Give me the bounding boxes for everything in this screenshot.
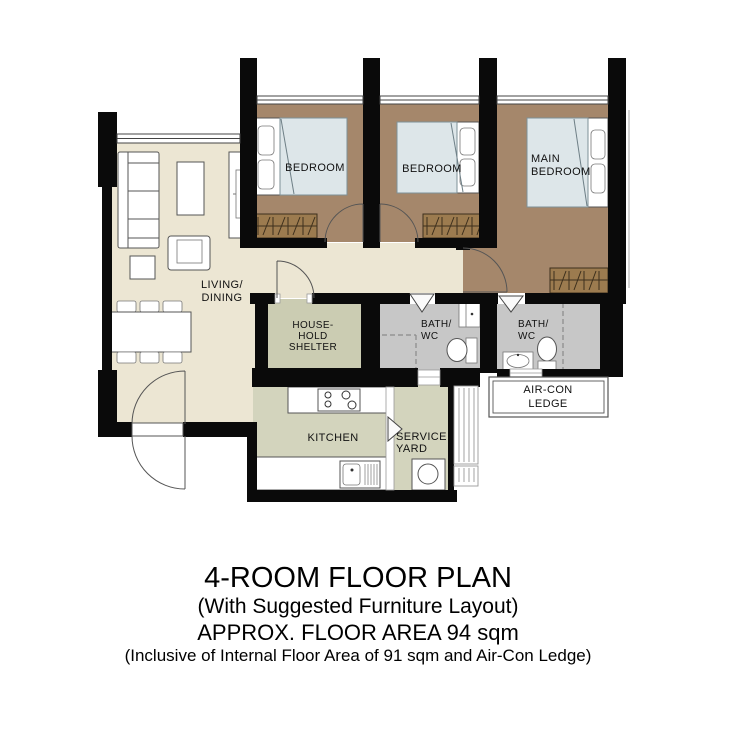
household-shelter-label: SHELTER — [289, 342, 337, 353]
dining-chair-icon — [163, 352, 182, 363]
stove-icon — [318, 389, 360, 411]
bath1-label: WC — [421, 331, 438, 342]
aircon-ledge-label: LEDGE — [528, 398, 567, 410]
living-dining-label: LIVING/ — [201, 279, 243, 291]
washing-machine-icon — [412, 459, 445, 490]
main-bedroom-label: MAIN — [531, 153, 560, 165]
corridor-floor — [250, 243, 463, 298]
bedroom1-label: BEDROOM — [285, 162, 345, 174]
dining-chair-icon — [163, 301, 182, 312]
wardrobe-icon — [550, 268, 608, 293]
pillow-icon — [591, 130, 605, 159]
kitchen-sink-icon — [340, 461, 380, 488]
window-icon — [418, 370, 440, 385]
bed-icon — [397, 122, 479, 193]
window-icon — [510, 369, 542, 377]
aircon-ledge-box — [489, 377, 608, 417]
service-yard-label: YARD — [396, 443, 427, 455]
living-dining-label: DINING — [202, 292, 243, 304]
wash-basin-icon — [503, 352, 533, 371]
bath2-label: WC — [518, 331, 535, 342]
window-icon — [497, 96, 608, 104]
dining-chair-icon — [140, 352, 159, 363]
bedroom2-label: BEDROOM — [402, 163, 462, 175]
aircon-ledge-label: AIR-CON — [523, 384, 572, 396]
pillow-icon — [460, 128, 475, 155]
floor-plan-drawing: LIVING/ DINING BEDROOM BEDROOM MAIN BEDR… — [0, 0, 750, 750]
sofa-icon — [118, 152, 159, 248]
main-bedroom-label: BEDROOM — [531, 166, 591, 178]
dining-chair-icon — [117, 301, 136, 312]
household-shelter-label: HOLD — [298, 331, 327, 342]
door-frame — [307, 294, 312, 303]
window-icon — [257, 96, 363, 104]
plan-area-line: APPROX. FLOOR AREA 94 sqm — [197, 620, 519, 645]
pillow-icon — [258, 160, 274, 189]
bed-icon — [255, 118, 347, 195]
drying-rack-icon — [454, 386, 478, 486]
armchair-icon — [168, 236, 210, 270]
wardrobe-icon — [253, 214, 317, 238]
coffee-table-icon — [177, 162, 204, 215]
pillow-icon — [591, 164, 605, 193]
pillow-icon — [258, 126, 274, 155]
wardrobe-icon — [423, 214, 485, 238]
wash-basin-icon — [459, 301, 480, 327]
toilet-icon — [447, 338, 477, 363]
window-icon — [380, 96, 479, 104]
toilet-icon — [538, 337, 557, 373]
service-yard-label: SERVICE — [396, 431, 447, 443]
dining-chair-icon — [140, 301, 159, 312]
side-table-icon — [130, 256, 155, 279]
window-icon — [117, 134, 240, 143]
floor-plan-page: LIVING/ DINING BEDROOM BEDROOM MAIN BEDR… — [0, 0, 750, 750]
dining-table-icon — [111, 301, 191, 363]
plan-area-note: (Inclusive of Internal Floor Area of 91 … — [125, 646, 592, 665]
kitchen-label: KITCHEN — [307, 432, 358, 444]
plan-title: 4-ROOM FLOOR PLAN — [204, 562, 512, 594]
bath1-label: BATH/ — [421, 319, 452, 330]
household-shelter-label: HOUSE- — [292, 320, 333, 331]
bath2-label: BATH/ — [518, 319, 549, 330]
pillow-icon — [460, 159, 475, 186]
dining-chair-icon — [117, 352, 136, 363]
plan-subtitle: (With Suggested Furniture Layout) — [198, 595, 519, 618]
title-block: 4-ROOM FLOOR PLAN (With Suggested Furnit… — [125, 562, 592, 665]
